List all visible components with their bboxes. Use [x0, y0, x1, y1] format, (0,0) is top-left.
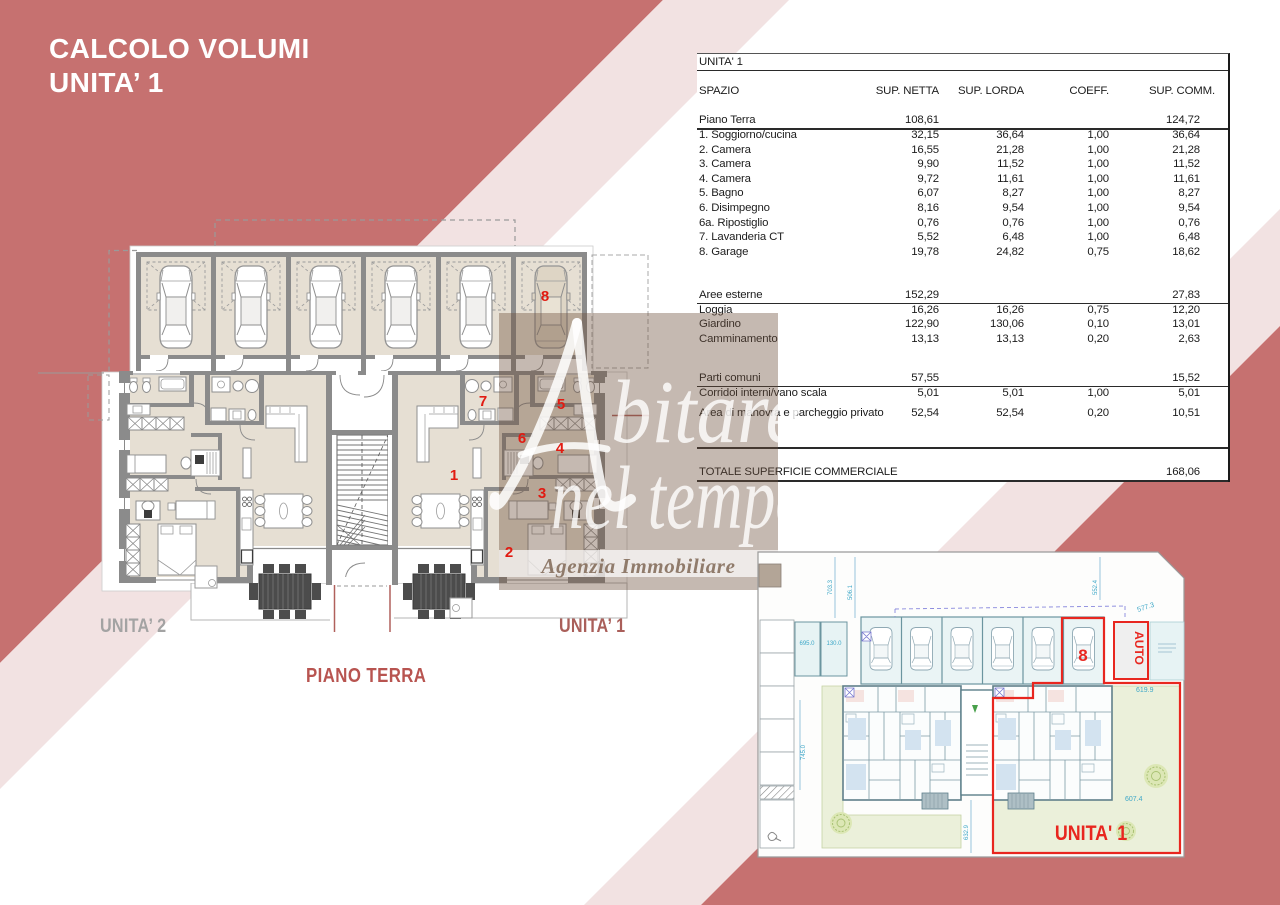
svg-text:607.4: 607.4 [1125, 796, 1143, 803]
svg-text:8: 8 [1078, 646, 1087, 665]
svg-text:130.0: 130.0 [826, 641, 842, 647]
svg-text:632.9: 632.9 [964, 824, 970, 840]
svg-text:506.1: 506.1 [848, 584, 854, 600]
svg-text:745.0: 745.0 [801, 744, 807, 760]
svg-text:552.4: 552.4 [1093, 579, 1099, 595]
svg-text:619.9: 619.9 [1136, 687, 1154, 694]
svg-text:695.0: 695.0 [799, 641, 815, 647]
svg-text:UNITA' 1: UNITA' 1 [1055, 822, 1127, 846]
svg-text:703.3: 703.3 [828, 579, 834, 595]
svg-text:AUTO: AUTO [1132, 631, 1146, 665]
